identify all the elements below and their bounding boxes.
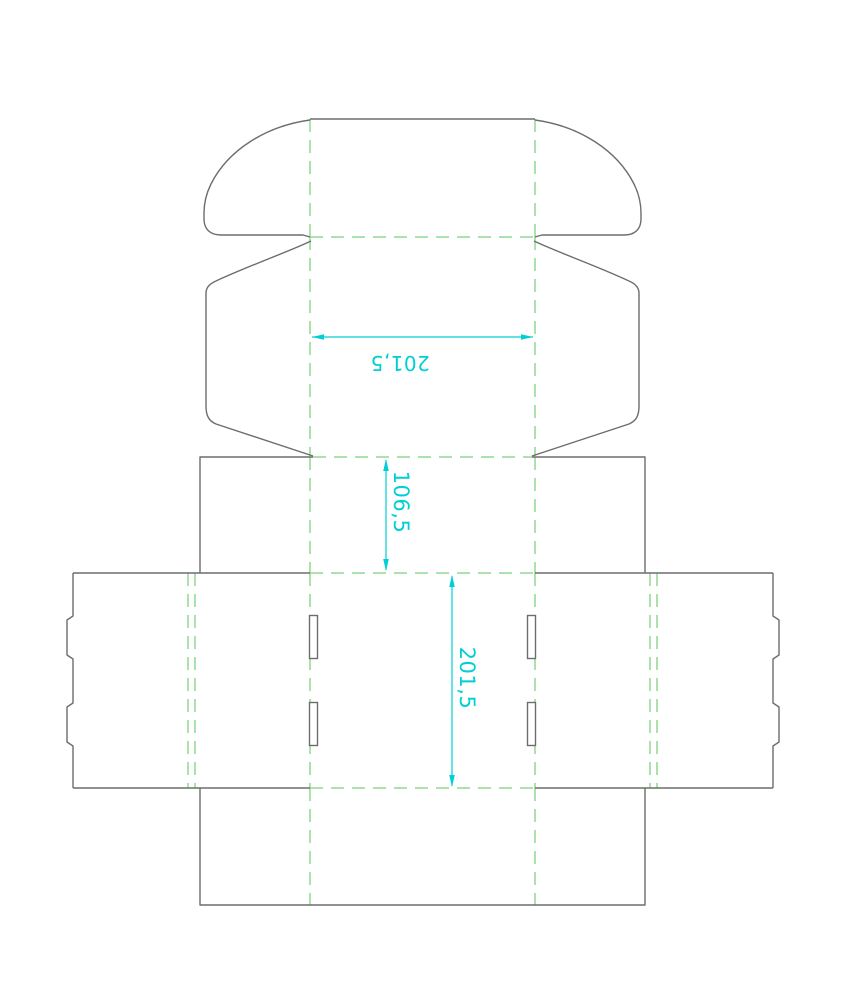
- arrow-down-icon: [449, 775, 455, 787]
- arrow-up-icon: [383, 459, 389, 471]
- lid-left-ear-outline: [204, 120, 310, 237]
- arrow-down-icon: [383, 559, 389, 571]
- dimension-layer: 201,5 106,5 201,5: [312, 334, 533, 787]
- arrow-left-icon: [312, 334, 324, 340]
- dieline-canvas: 201,5 106,5 201,5: [0, 0, 865, 1000]
- dimension-lid-width: 201,5: [312, 334, 533, 375]
- dimension-front-height: 106,5: [383, 459, 413, 571]
- dieline-drawing: 201,5 106,5 201,5: [0, 0, 865, 1000]
- lid-right-side-flap-outline: [532, 241, 639, 456]
- dimension-label-front-height: 106,5: [389, 471, 413, 534]
- fold-lines-layer: [188, 119, 657, 905]
- lock-slot-top-left: [310, 616, 318, 659]
- lock-slot-bottom-right: [528, 703, 536, 746]
- dimension-label-base-length: 201,5: [455, 647, 479, 710]
- front-left-side-panel-outline: [200, 457, 313, 573]
- right-lock-flap-outline: [773, 573, 779, 788]
- lid-left-side-flap-outline: [206, 241, 313, 456]
- dimension-label-lid-width: 201,5: [370, 351, 430, 375]
- dimension-base-length: 201,5: [449, 575, 479, 787]
- arrow-up-icon: [449, 575, 455, 587]
- front-right-side-panel-outline: [532, 457, 645, 573]
- arrow-right-icon: [521, 334, 533, 340]
- lid-right-ear-outline: [535, 120, 641, 237]
- rear-panel-outline: [200, 788, 645, 905]
- lock-slot-bottom-left: [310, 703, 318, 746]
- left-lock-flap-outline: [67, 573, 73, 788]
- lock-slot-top-right: [528, 616, 536, 659]
